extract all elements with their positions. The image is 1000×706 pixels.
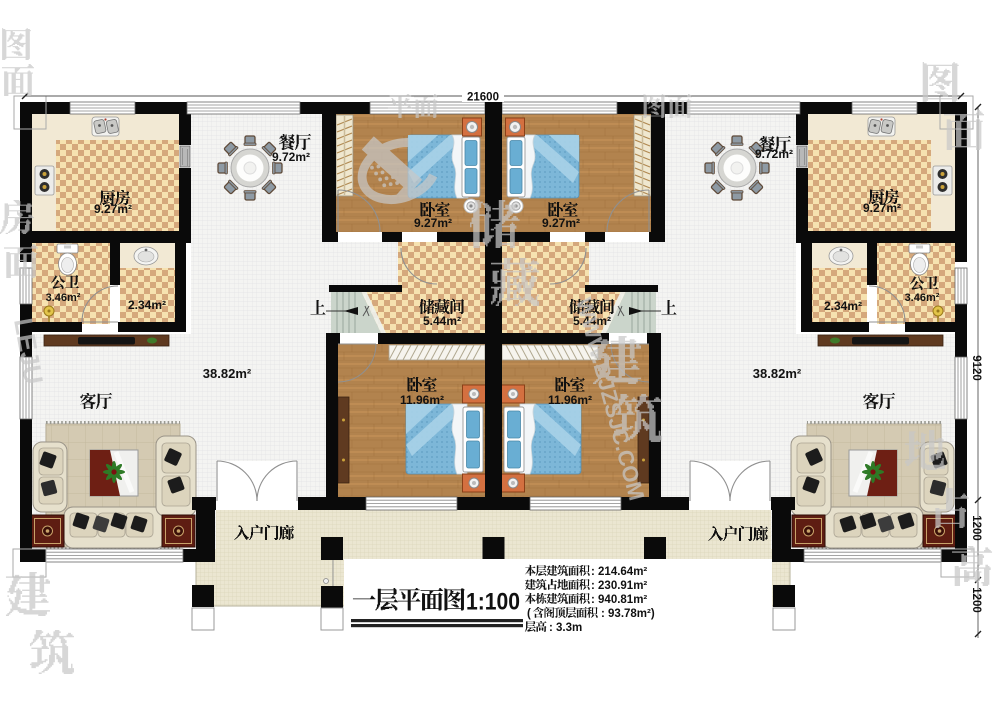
svg-text:1:100: 1:100 (466, 589, 520, 616)
svg-text:2.34m²: 2.34m² (128, 298, 166, 312)
svg-text:: 214.64m²: : 214.64m² (591, 566, 647, 578)
svg-text:(: ( (527, 608, 531, 620)
svg-text:3.46m²: 3.46m² (46, 292, 81, 304)
svg-text:9.27m²: 9.27m² (542, 216, 580, 230)
svg-text:9.72m²: 9.72m² (755, 147, 793, 161)
svg-text:1200: 1200 (970, 587, 982, 613)
svg-text:11.96m²: 11.96m² (400, 393, 444, 407)
svg-text:2.34m²: 2.34m² (824, 299, 862, 313)
svg-text:9.27m²: 9.27m² (94, 202, 132, 216)
svg-text:5.44m²: 5.44m² (423, 314, 461, 328)
svg-text:3.46m²: 3.46m² (905, 292, 940, 304)
svg-text:38.82m²: 38.82m² (753, 366, 802, 381)
svg-text:38.82m²: 38.82m² (203, 366, 252, 381)
svg-text:: 3.3m: : 3.3m (549, 622, 582, 634)
svg-text:9.27m²: 9.27m² (414, 216, 452, 230)
svg-text:9120: 9120 (970, 355, 982, 381)
svg-text:1200: 1200 (970, 515, 982, 541)
svg-text:21600: 21600 (467, 92, 499, 104)
svg-text:: 230.91m²: : 230.91m² (591, 580, 647, 592)
svg-text:9.27m²: 9.27m² (863, 201, 901, 215)
svg-text:9.72m²: 9.72m² (272, 150, 310, 164)
svg-text:: 940.81m²: : 940.81m² (591, 594, 647, 606)
svg-text:: 93.78m²): : 93.78m²) (601, 608, 655, 620)
svg-text:11.96m²: 11.96m² (548, 393, 592, 407)
